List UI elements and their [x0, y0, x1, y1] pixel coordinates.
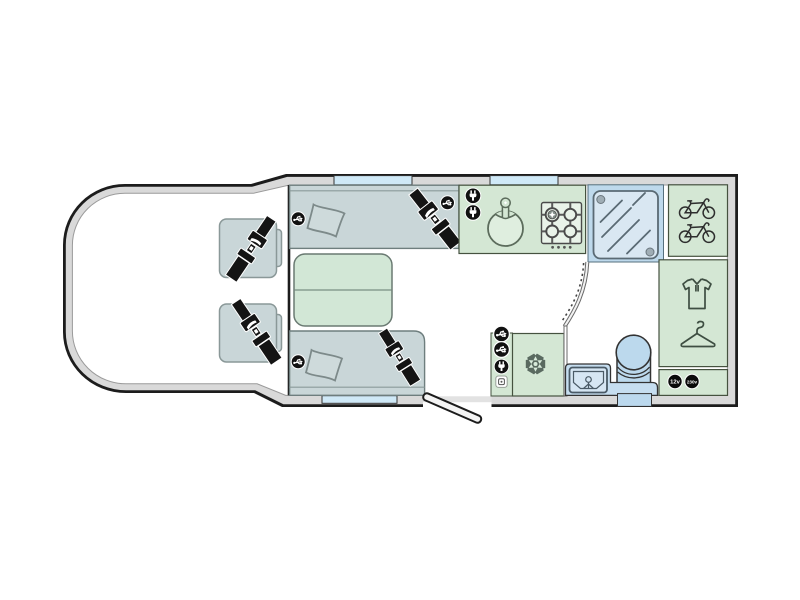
svg-text:230v: 230v	[687, 379, 698, 384]
svg-text:12v: 12v	[670, 380, 680, 386]
